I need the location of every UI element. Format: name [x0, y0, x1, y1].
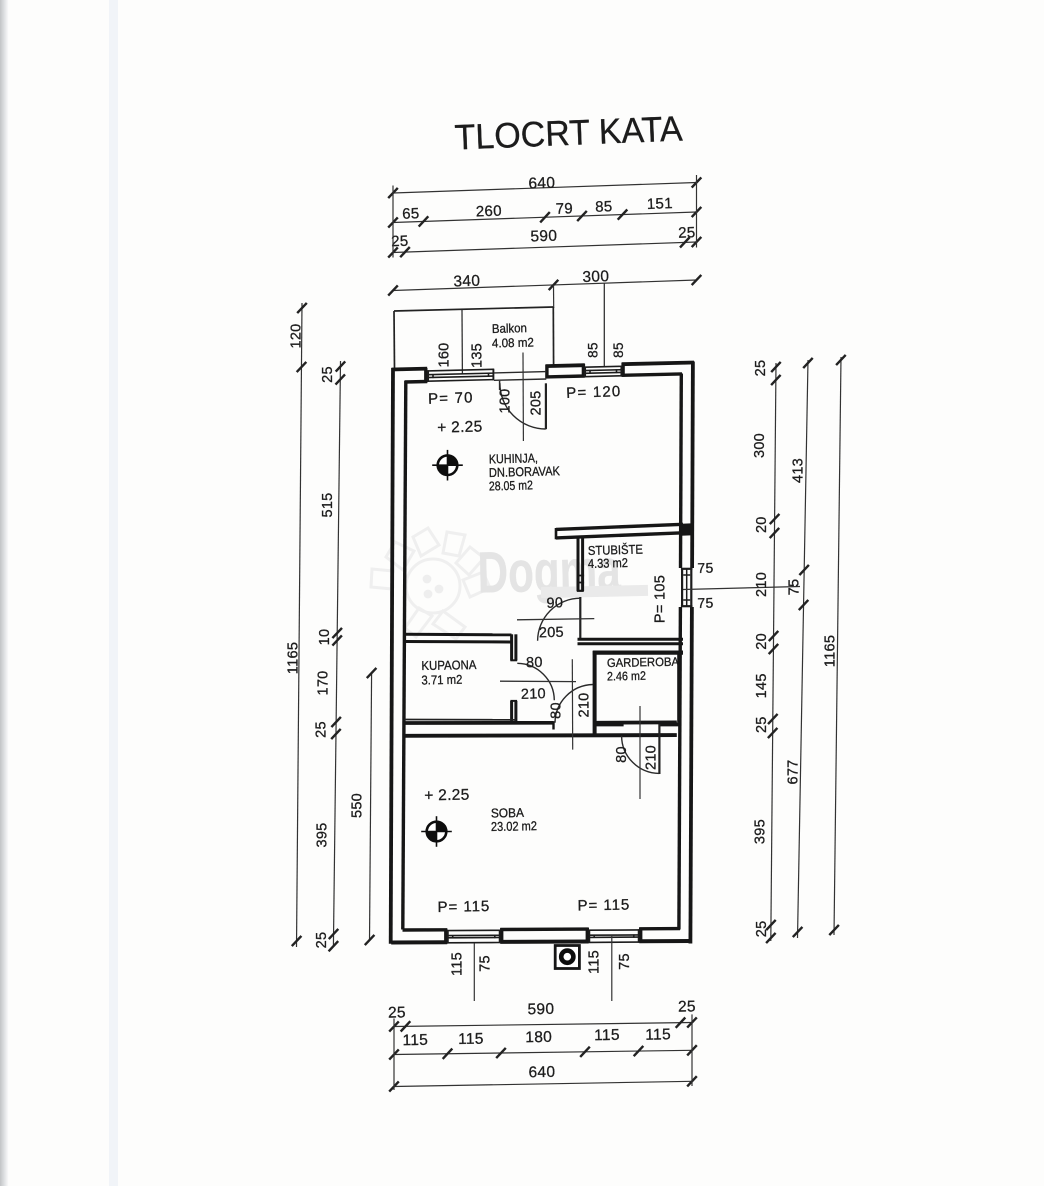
svg-text:85: 85 [595, 198, 613, 216]
svg-text:P= 120: P= 120 [566, 383, 622, 402]
svg-text:25: 25 [678, 224, 696, 242]
svg-text:340: 340 [453, 273, 480, 291]
svg-text:640: 640 [528, 1064, 555, 1081]
svg-text:115: 115 [450, 952, 466, 976]
svg-text:P= 70: P= 70 [428, 389, 474, 407]
svg-text:590: 590 [527, 1001, 554, 1018]
svg-text:115: 115 [402, 1032, 428, 1049]
svg-text:210: 210 [754, 572, 770, 597]
svg-text:205: 205 [539, 625, 565, 642]
svg-text:145: 145 [754, 673, 770, 698]
svg-text:300: 300 [582, 268, 609, 286]
svg-text:550: 550 [350, 793, 366, 818]
svg-text:210: 210 [521, 686, 547, 703]
svg-text:25: 25 [753, 360, 769, 377]
svg-text:25: 25 [754, 921, 770, 938]
svg-text:10: 10 [317, 629, 333, 646]
svg-text:75: 75 [697, 560, 714, 576]
svg-text:75: 75 [478, 955, 494, 972]
svg-text:28.05 m2: 28.05 m2 [489, 477, 533, 493]
svg-text:160: 160 [437, 342, 453, 367]
svg-text:115: 115 [587, 950, 603, 974]
svg-text:75: 75 [697, 595, 714, 611]
svg-text:25: 25 [320, 366, 336, 383]
svg-text:4.08 m2: 4.08 m2 [492, 335, 534, 350]
svg-text:395: 395 [753, 819, 769, 844]
svg-text:25: 25 [314, 932, 330, 949]
svg-text:260: 260 [476, 203, 503, 221]
svg-text:+ 2.25: + 2.25 [424, 787, 470, 805]
svg-text:20: 20 [754, 516, 770, 533]
svg-text:120: 120 [289, 323, 305, 348]
svg-text:170: 170 [316, 670, 332, 695]
svg-text:75: 75 [787, 579, 803, 596]
svg-text:25: 25 [678, 998, 696, 1015]
svg-text:KUPAONA: KUPAONA [421, 657, 477, 673]
svg-text:151: 151 [647, 195, 674, 213]
svg-text:640: 640 [528, 175, 555, 193]
svg-text:135: 135 [470, 343, 486, 368]
svg-text:85: 85 [611, 342, 626, 358]
svg-text:180: 180 [525, 1029, 552, 1046]
svg-text:2.46 m2: 2.46 m2 [607, 669, 646, 684]
svg-text:3.71 m2: 3.71 m2 [421, 672, 462, 688]
svg-text:79: 79 [555, 200, 573, 218]
svg-text:Balkon: Balkon [492, 321, 527, 336]
svg-text:P= 115: P= 115 [577, 896, 630, 914]
svg-text:4.33 m2: 4.33 m2 [588, 555, 628, 571]
svg-text:115: 115 [594, 1027, 620, 1044]
svg-text:300: 300 [752, 433, 768, 458]
svg-text:25: 25 [388, 1004, 406, 1021]
svg-text:413: 413 [791, 458, 807, 483]
svg-text:75: 75 [617, 953, 633, 970]
svg-text:20: 20 [754, 633, 770, 650]
svg-text:80: 80 [549, 702, 565, 719]
svg-text:1165: 1165 [286, 642, 302, 674]
svg-text:23.02 m2: 23.02 m2 [491, 818, 537, 834]
svg-text:25: 25 [314, 721, 330, 738]
svg-text:+ 2.25: + 2.25 [437, 418, 483, 436]
svg-text:100: 100 [498, 388, 514, 413]
svg-text:115: 115 [645, 1026, 671, 1043]
svg-text:GARDEROBA: GARDEROBA [607, 655, 680, 670]
svg-text:1165: 1165 [823, 635, 839, 667]
svg-text:395: 395 [315, 822, 331, 847]
svg-text:205: 205 [529, 390, 545, 415]
svg-text:590: 590 [530, 228, 557, 246]
svg-text:25: 25 [754, 716, 770, 733]
svg-text:515: 515 [320, 492, 336, 517]
svg-text:80: 80 [526, 655, 543, 671]
svg-text:115: 115 [458, 1031, 484, 1048]
svg-text:210: 210 [644, 745, 660, 770]
svg-text:80: 80 [614, 746, 630, 763]
svg-text:677: 677 [786, 759, 802, 784]
svg-text:P= 115: P= 115 [437, 898, 490, 916]
svg-text:85: 85 [586, 342, 601, 358]
svg-text:90: 90 [546, 595, 563, 611]
svg-text:210: 210 [577, 692, 593, 717]
svg-text:P= 105: P= 105 [653, 575, 669, 623]
svg-text:65: 65 [402, 205, 420, 223]
